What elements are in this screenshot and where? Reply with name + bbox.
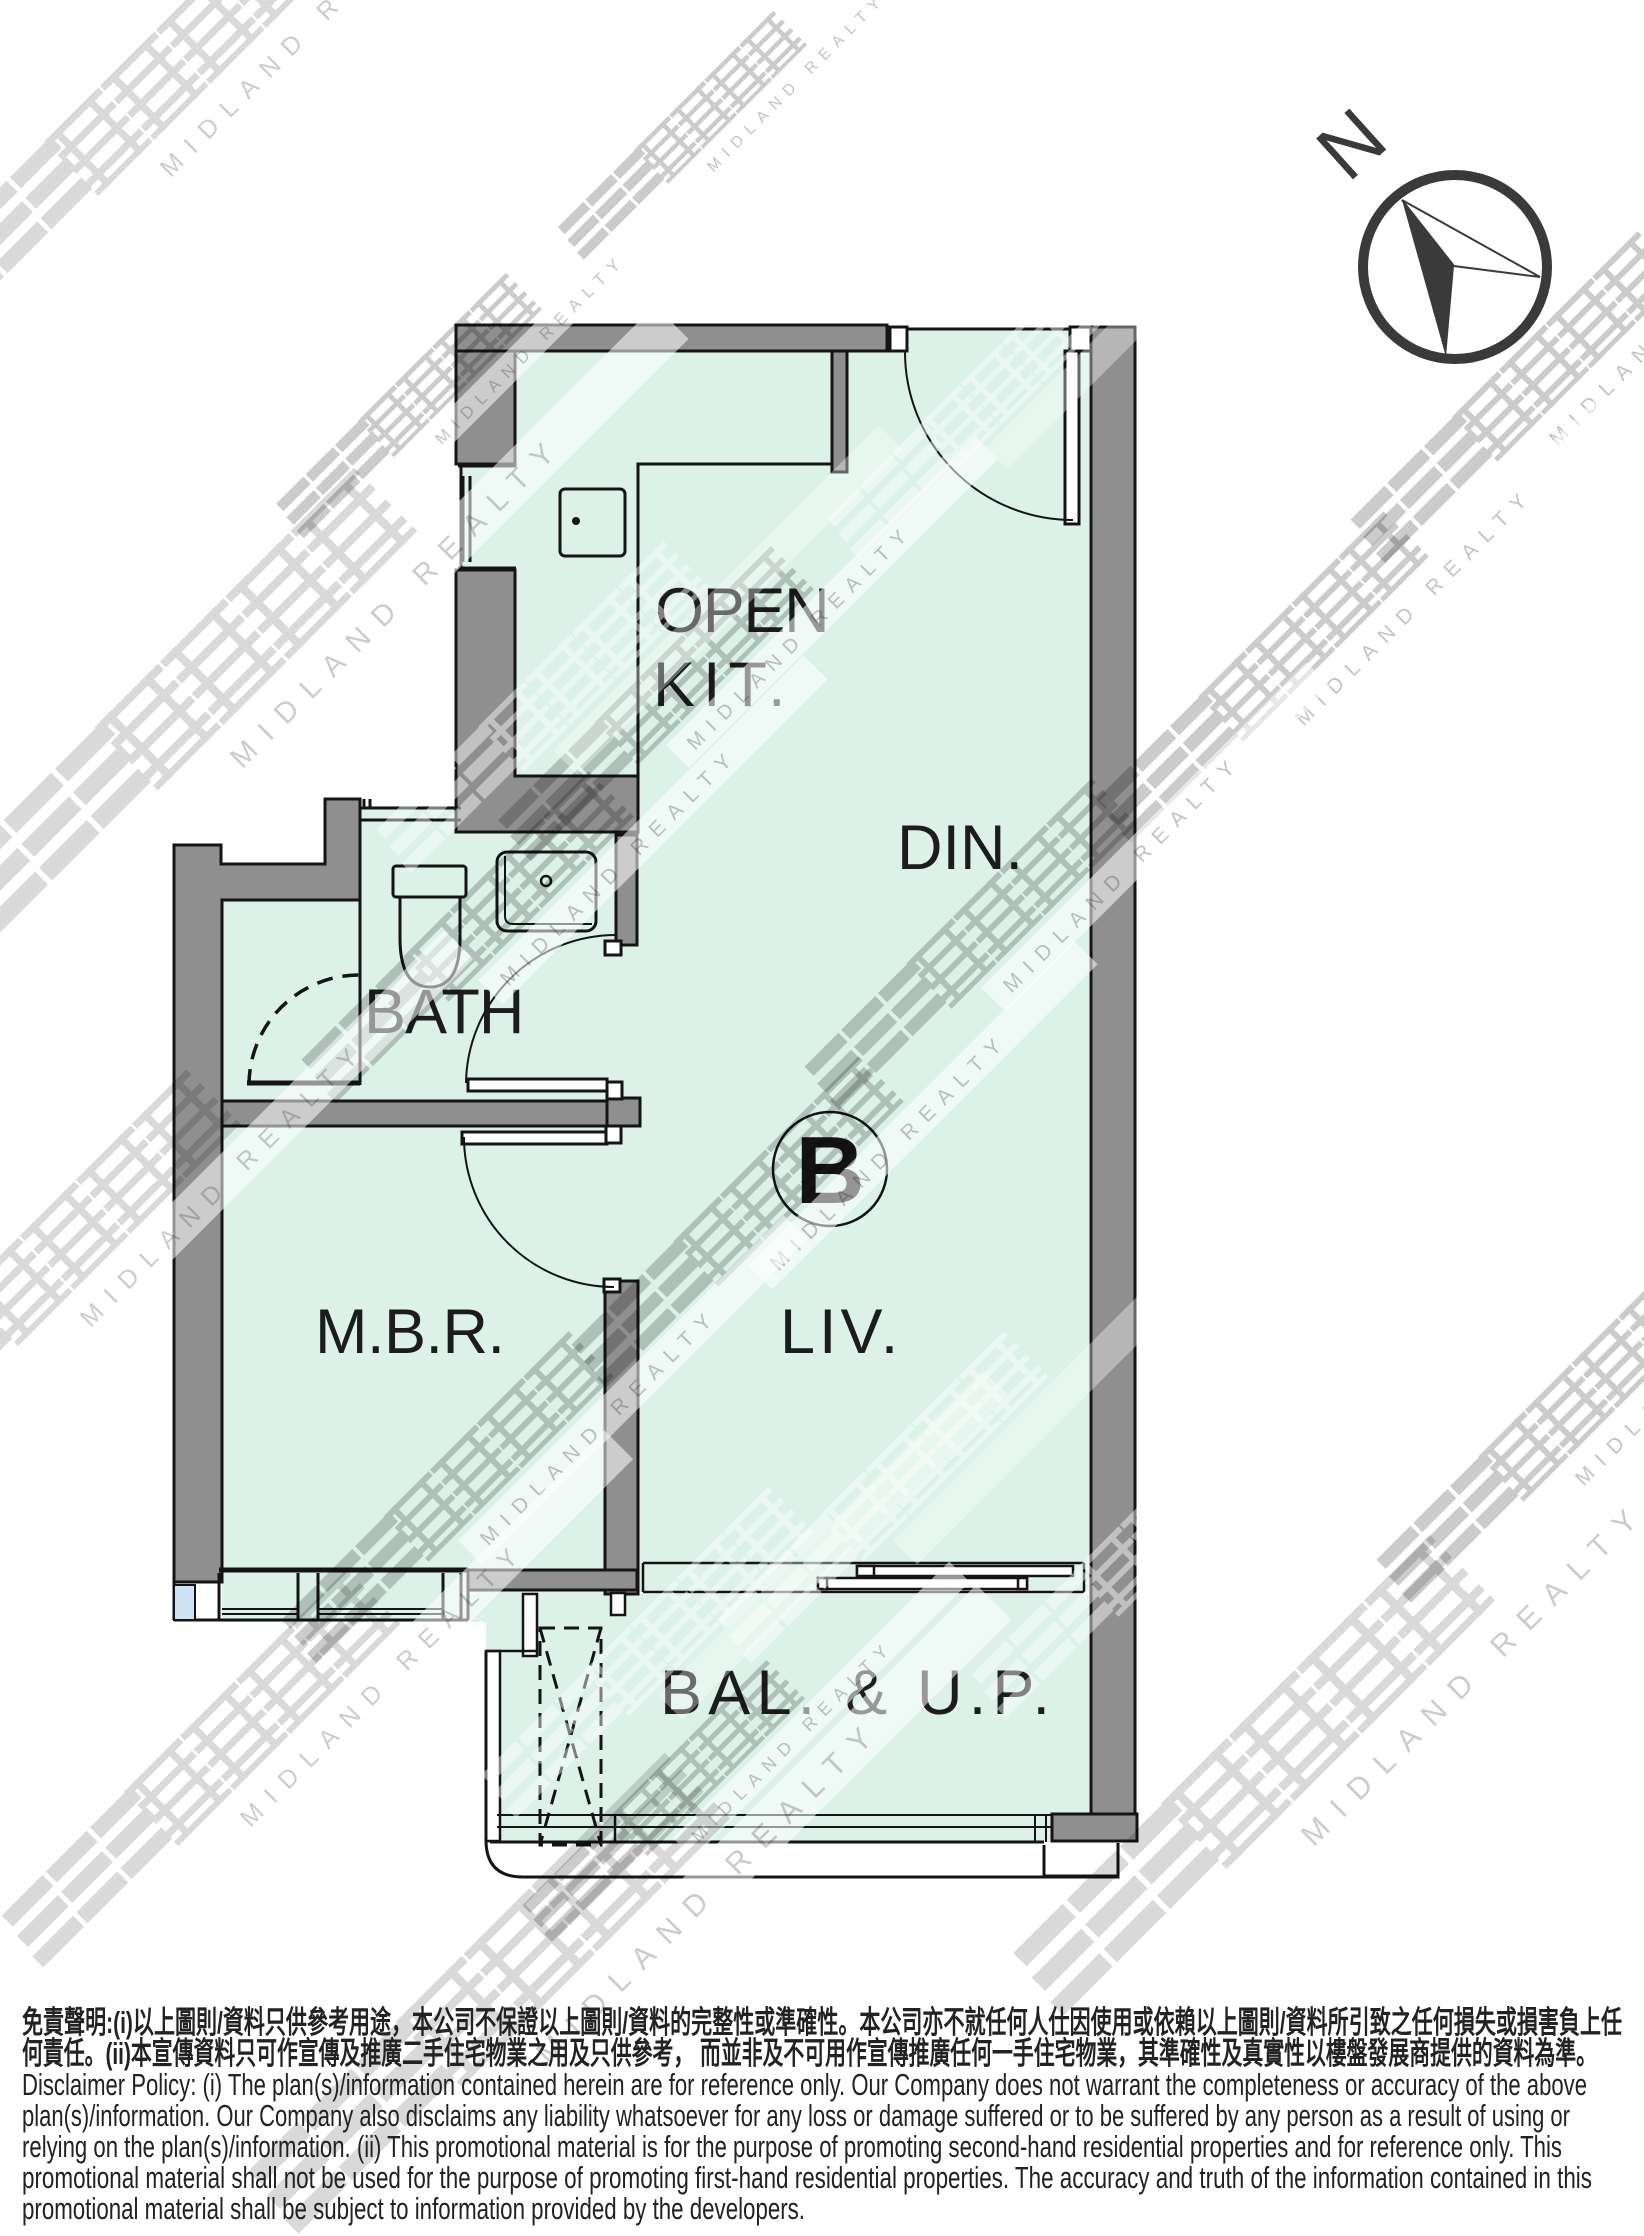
svg-text:免責聲明:(i)以上圖則/資料只供參考用途，本公司不保證以上: 免責聲明:(i)以上圖則/資料只供參考用途，本公司不保證以上圖則/資料的完整性或…: [22, 2005, 1622, 2040]
svg-text:promotional material shall be: promotional material shall be subject to…: [22, 2191, 805, 2226]
svg-text:M.B.R.: M.B.R.: [315, 1297, 505, 1367]
svg-text:Disclaimer Policy: (i) The pla: Disclaimer Policy: (i) The plan(s)/infor…: [22, 2067, 1587, 2102]
svg-text:何責任。(ii)本宣傳資料只可作宣傳及推廣二手住宅物業之用及: 何責任。(ii)本宣傳資料只可作宣傳及推廣二手住宅物業之用及只供參考， 而並非及…: [22, 2036, 1597, 2071]
svg-text:plan(s)/information. Our Compa: plan(s)/information. Our Company also di…: [22, 2098, 1570, 2133]
svg-text:LIV.: LIV.: [780, 1297, 902, 1367]
svg-text:N: N: [1300, 92, 1402, 197]
svg-text:promotional material shall not: promotional material shall not be used f…: [22, 2160, 1592, 2195]
svg-text:relying on the plan(s)/informa: relying on the plan(s)/information. (ii)…: [22, 2129, 1562, 2164]
